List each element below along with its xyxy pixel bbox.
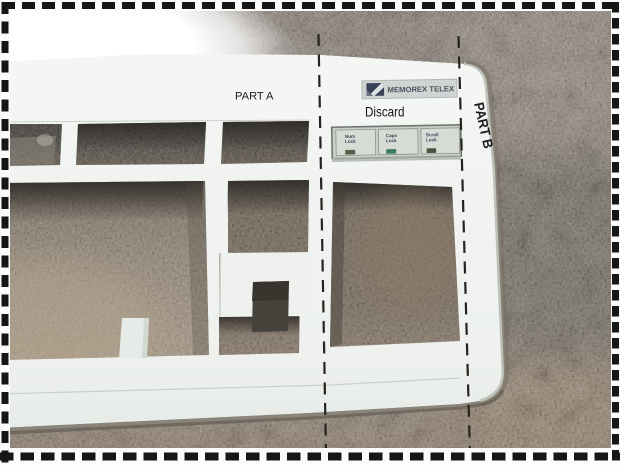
svg-text:MEMOREX TELEX: MEMOREX TELEX [387, 84, 455, 94]
svg-text:Lock: Lock [426, 137, 437, 142]
svg-text:PART A: PART A [235, 91, 274, 103]
svg-text:Lock: Lock [386, 138, 397, 143]
svg-text:Discard: Discard [365, 105, 405, 121]
svg-text:Lock: Lock [345, 139, 356, 144]
